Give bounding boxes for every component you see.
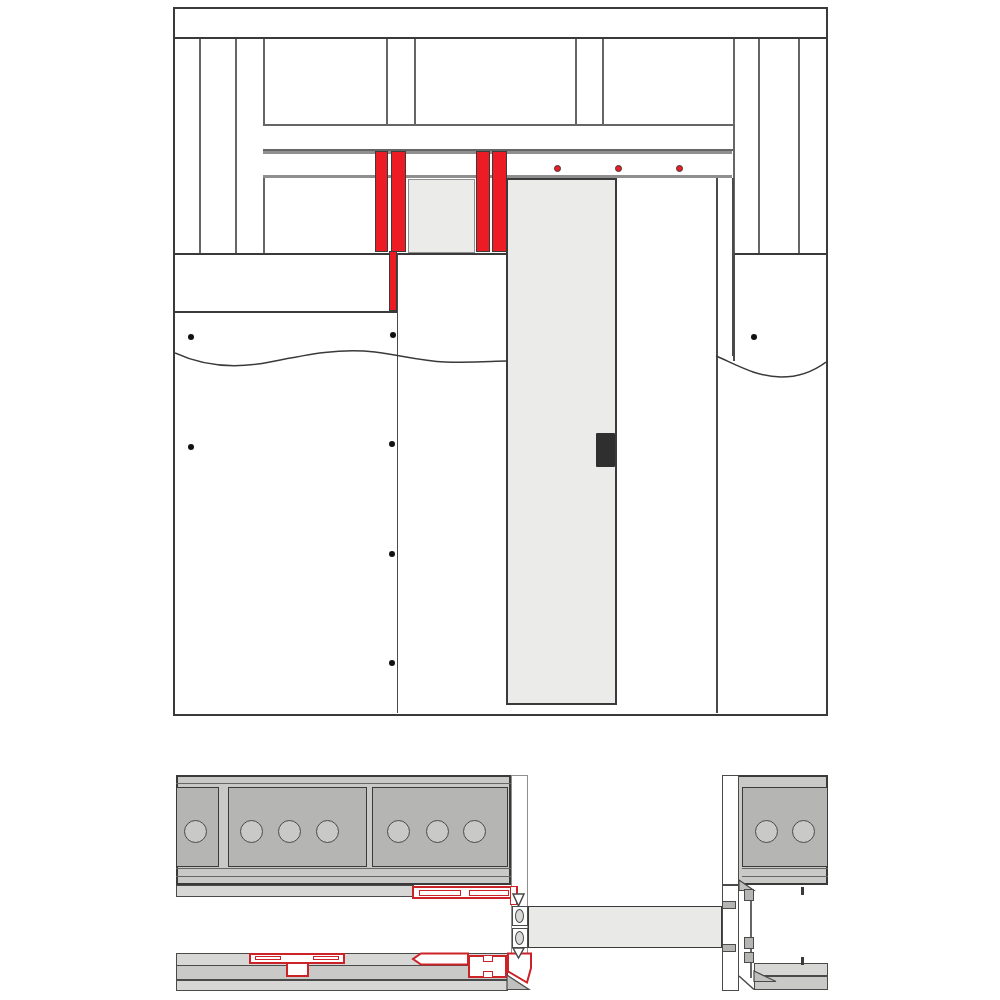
split-jamb-red xyxy=(492,151,507,252)
stud-hole xyxy=(316,820,339,843)
stud-hole xyxy=(426,820,449,843)
red-mullion-notch xyxy=(483,971,493,978)
roller-wheel xyxy=(515,909,524,923)
jamb-clip xyxy=(744,952,754,963)
break-lines-layer xyxy=(175,9,826,714)
roller-wheel xyxy=(515,931,524,945)
wall-inner-line xyxy=(176,783,511,784)
stud-line xyxy=(798,39,800,253)
near-wall-strip xyxy=(176,965,508,980)
drywall-joint-line xyxy=(175,311,398,313)
jamb-channel-upper xyxy=(722,775,739,885)
stud-hole xyxy=(278,820,301,843)
stud-hole xyxy=(240,820,263,843)
jamb-clip xyxy=(744,937,754,949)
cripple-stud-line xyxy=(386,39,388,124)
jamb-clip xyxy=(744,889,754,901)
drywall-return-strip xyxy=(176,885,414,897)
split-jamb-red-extension xyxy=(389,251,397,311)
door-header xyxy=(263,124,733,151)
stud-line xyxy=(199,39,201,253)
stud-line xyxy=(758,39,760,253)
drywall-screw xyxy=(389,441,395,447)
wall-inner-line xyxy=(742,876,828,877)
track-screw xyxy=(676,165,683,172)
break-line-left xyxy=(175,351,507,366)
cripple-stud-line xyxy=(602,39,604,124)
top-plate-line xyxy=(175,37,826,39)
drawing-page xyxy=(0,0,1000,1000)
stud-hole xyxy=(755,820,778,843)
guide-pointer-bottom xyxy=(511,947,528,960)
stud-hole xyxy=(184,820,207,843)
red-channel-leg xyxy=(286,962,309,977)
drywall-screw xyxy=(390,332,396,338)
door-slab-in-pocket xyxy=(408,179,475,253)
wall-inner-line xyxy=(176,876,511,877)
drywall-screw xyxy=(389,551,395,557)
red-channel-slot xyxy=(313,956,339,960)
stud-hole xyxy=(463,820,486,843)
door-end-clip xyxy=(722,944,736,952)
wall-inner-line xyxy=(176,868,511,869)
stud-sill-line xyxy=(733,253,826,255)
stud-hole xyxy=(387,820,410,843)
wall-inner-line xyxy=(742,868,828,869)
cripple-stud-line xyxy=(414,39,416,124)
near-wall-strip xyxy=(754,963,828,976)
drywall-screw xyxy=(389,660,395,666)
jamb-foot-line xyxy=(739,976,754,990)
red-mullion-notch xyxy=(483,955,493,962)
red-channel-slot xyxy=(255,956,281,960)
stud-sill-line xyxy=(175,253,506,255)
strip-end-wedge xyxy=(507,975,529,990)
elevation-view xyxy=(173,7,828,716)
strike-jamb-line xyxy=(716,178,718,713)
plan-section-view xyxy=(176,775,828,992)
door-end-clip xyxy=(722,901,736,909)
drywall-screw xyxy=(751,334,757,340)
fastener-tick xyxy=(801,887,804,895)
split-jamb-red xyxy=(391,151,407,252)
cripple-stud-line xyxy=(575,39,577,124)
fastener-tick xyxy=(801,957,804,965)
track-screw xyxy=(554,165,561,172)
drywall-screw xyxy=(188,334,194,340)
stud-hole xyxy=(792,820,815,843)
track-screw xyxy=(615,165,622,172)
red-track-slot xyxy=(469,890,509,896)
near-wall-strip xyxy=(754,976,828,990)
drywall-screw xyxy=(188,444,194,450)
strike-jamb-line xyxy=(750,888,752,978)
red-track-slot xyxy=(419,890,461,896)
door-slab-plan[interactable] xyxy=(528,906,722,948)
panel-edge-line xyxy=(733,253,735,361)
door-flush-pull[interactable] xyxy=(596,433,615,467)
stud-line xyxy=(235,39,237,253)
near-wall-strip xyxy=(176,980,508,991)
split-jamb-red xyxy=(476,151,490,252)
drywall-joint-line xyxy=(397,253,399,713)
split-jamb-red xyxy=(375,151,388,252)
